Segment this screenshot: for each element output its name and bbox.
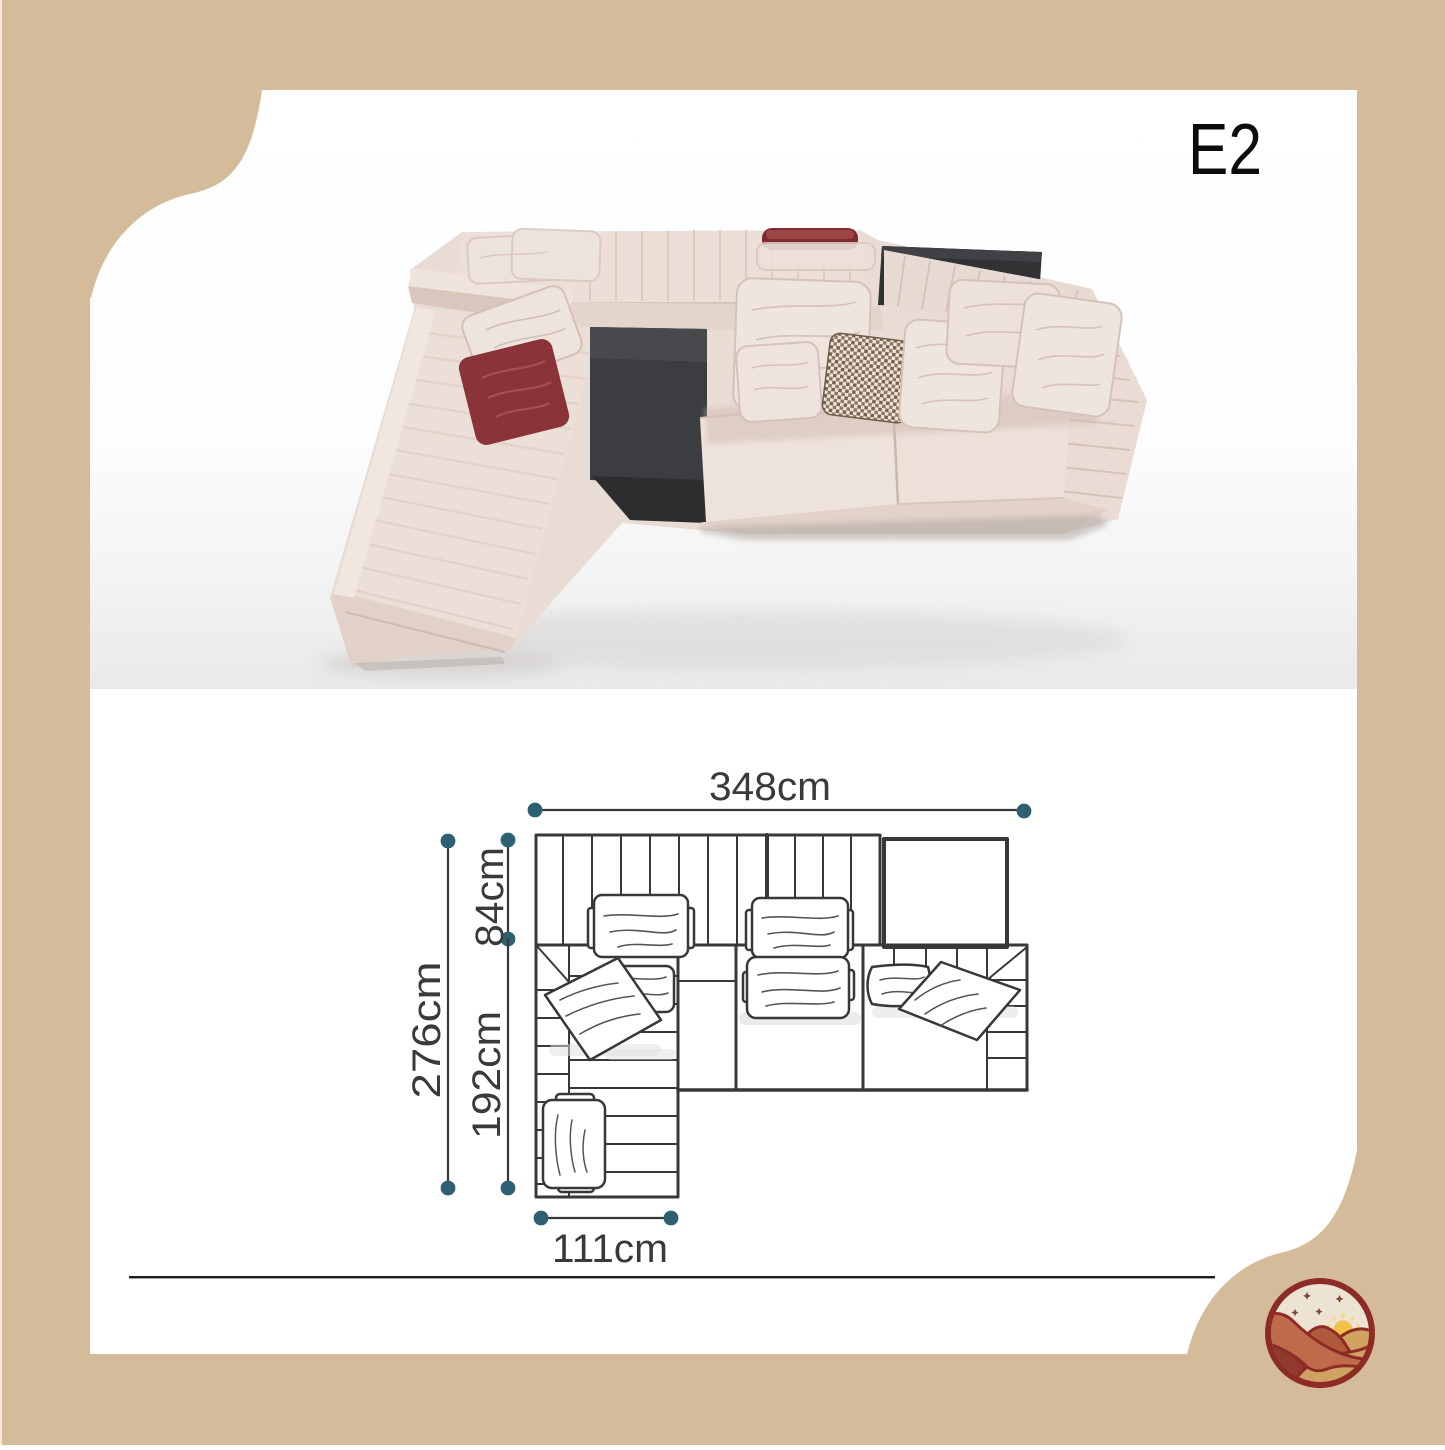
svg-text:84cm: 84cm — [468, 847, 512, 947]
svg-text:192cm: 192cm — [465, 1011, 509, 1139]
svg-text:276cm: 276cm — [405, 962, 449, 1099]
svg-text:E2: E2 — [1188, 110, 1262, 190]
svg-text:111cm: 111cm — [552, 1227, 668, 1271]
svg-text:348cm: 348cm — [709, 765, 831, 809]
